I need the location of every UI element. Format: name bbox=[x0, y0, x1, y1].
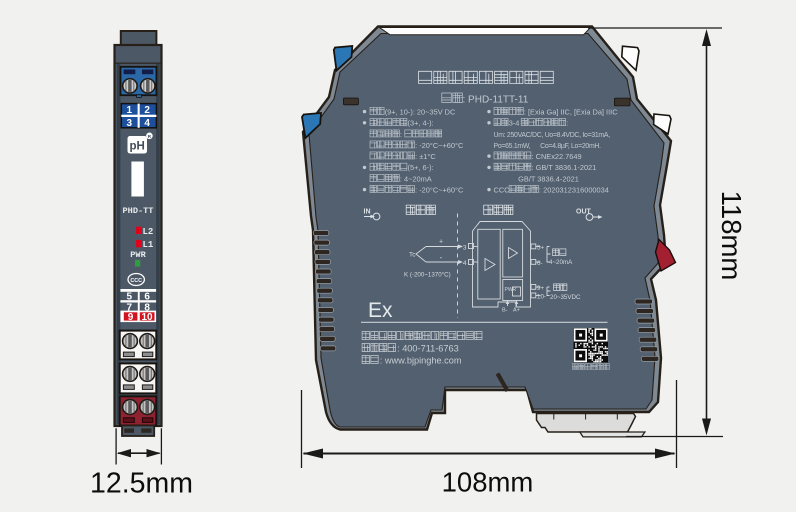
svg-text:: 2020312316000034: : 2020312316000034 bbox=[539, 185, 609, 194]
svg-text:3: 3 bbox=[463, 245, 467, 252]
svg-text:PWR: PWR bbox=[505, 287, 517, 293]
svg-text:: 400-711-6763: : 400-711-6763 bbox=[397, 344, 459, 354]
svg-text:IN: IN bbox=[364, 209, 371, 216]
svg-text:(9+, 10-): 20~35V DC: (9+, 10-): 20~35V DC bbox=[385, 107, 456, 116]
svg-text:pH: pH bbox=[130, 141, 145, 153]
svg-text:4: 4 bbox=[144, 118, 150, 129]
svg-text:6: 6 bbox=[144, 292, 150, 303]
svg-text:10-: 10- bbox=[537, 293, 546, 300]
svg-text:A+: A+ bbox=[513, 308, 520, 314]
svg-text::: : bbox=[566, 119, 568, 128]
svg-text:: -20°C~+60°C: : -20°C~+60°C bbox=[415, 185, 464, 194]
svg-text:5+: 5+ bbox=[537, 244, 544, 251]
svg-text:OUT: OUT bbox=[576, 209, 592, 216]
svg-text:20~35VDC: 20~35VDC bbox=[550, 294, 581, 301]
svg-text:: -20°C~+60°C: : -20°C~+60°C bbox=[415, 141, 464, 150]
svg-text:: [Exia Ga] IIC, [Exia Da] III: : [Exia Ga] IIC, [Exia Da] IIIC bbox=[524, 107, 618, 116]
svg-text:B-: B- bbox=[502, 308, 508, 314]
svg-text:5: 5 bbox=[127, 292, 133, 303]
svg-text:4~20mA: 4~20mA bbox=[549, 259, 573, 266]
svg-text:L2: L2 bbox=[143, 227, 154, 237]
svg-text:118mm: 118mm bbox=[716, 191, 747, 281]
svg-text:CCC: CCC bbox=[494, 185, 511, 194]
svg-text:4: 4 bbox=[463, 260, 467, 267]
svg-text:CCC: CCC bbox=[130, 278, 142, 284]
svg-text:Tc: Tc bbox=[409, 252, 416, 259]
svg-text:: www.bjpinghe.com: : www.bjpinghe.com bbox=[380, 356, 462, 366]
svg-text:: PHD-11TT-11: : PHD-11TT-11 bbox=[463, 95, 529, 106]
svg-text:1: 1 bbox=[127, 105, 133, 116]
svg-text:3: 3 bbox=[127, 118, 133, 129]
svg-text:PWR: PWR bbox=[130, 250, 146, 260]
svg-text:Ex: Ex bbox=[368, 299, 393, 322]
svg-text:10: 10 bbox=[141, 312, 153, 323]
svg-text:Po=65.1mW, Co=4.8µF, Lo=2: Po=65.1mW, Co=4.8µF, Lo=20mH. bbox=[494, 143, 602, 150]
svg-text:-: - bbox=[440, 253, 443, 262]
svg-text:: 4~20mA: : 4~20mA bbox=[400, 174, 432, 183]
svg-text:(3+, 4-):: (3+, 4-): bbox=[408, 119, 434, 128]
svg-text:L1: L1 bbox=[143, 240, 154, 250]
svg-text:(5+, 6-):: (5+, 6-): bbox=[408, 163, 434, 172]
svg-text:+: + bbox=[439, 239, 443, 246]
svg-text:PHD-TT: PHD-TT bbox=[123, 206, 154, 216]
svg-text:12.5mm: 12.5mm bbox=[90, 468, 193, 500]
svg-text:: ±1°C: : ±1°C bbox=[415, 152, 436, 161]
svg-text:9+: 9+ bbox=[537, 285, 544, 292]
svg-text:: GB/T 3836.1-2021: : GB/T 3836.1-2021 bbox=[532, 163, 597, 172]
svg-text:3-4: 3-4 bbox=[509, 119, 520, 128]
svg-text:GB/T 3836.4-2021: GB/T 3836.4-2021 bbox=[494, 174, 579, 183]
svg-text:108mm: 108mm bbox=[442, 467, 534, 498]
svg-text:Um: 250VAC/DC, Uo=8.4VDC, Io=3: Um: 250VAC/DC, Uo=8.4VDC, Io=31mA, bbox=[494, 132, 611, 139]
svg-text:2: 2 bbox=[144, 105, 150, 116]
svg-text:6-: 6- bbox=[537, 260, 543, 267]
svg-text::: : bbox=[400, 130, 404, 139]
svg-text:: CNEx22.7649: : CNEx22.7649 bbox=[532, 152, 582, 161]
svg-text:9: 9 bbox=[128, 312, 134, 323]
svg-text:K (-200~1370°C): K (-200~1370°C) bbox=[404, 272, 451, 279]
